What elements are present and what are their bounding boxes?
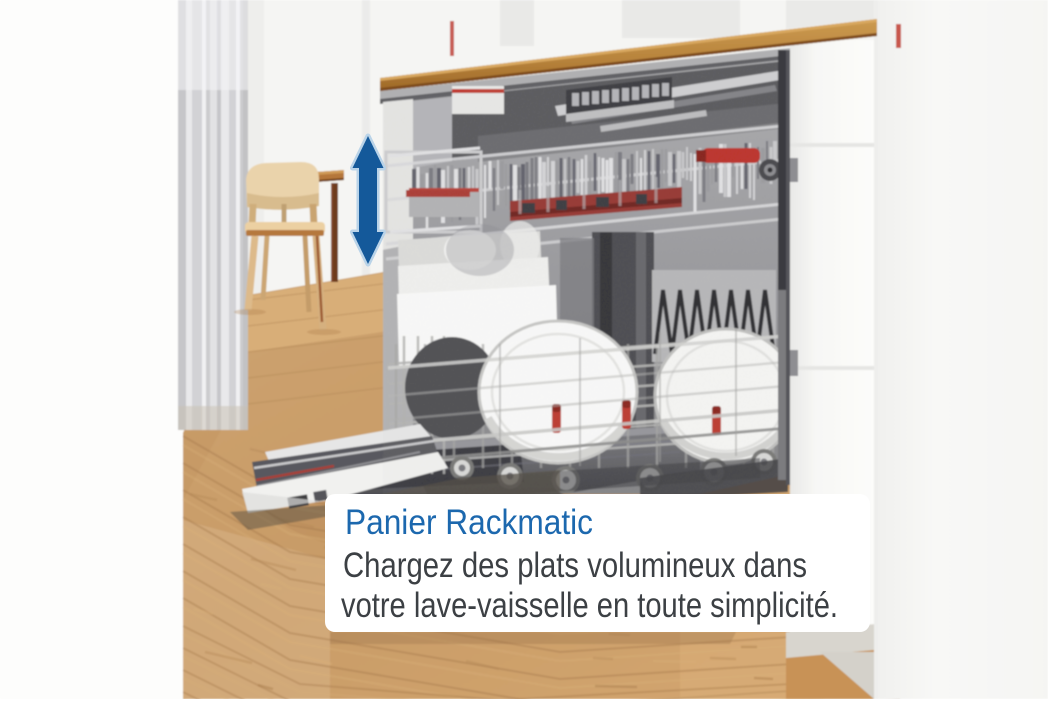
svg-text:Chargez des plats volumineux d: Chargez des plats volumineux dans xyxy=(343,546,807,585)
svg-text:Panier Rackmatic: Panier Rackmatic xyxy=(345,503,593,542)
svg-text:votre lave-vaisselle en toute: votre lave-vaisselle en toute simplicité… xyxy=(341,586,838,625)
